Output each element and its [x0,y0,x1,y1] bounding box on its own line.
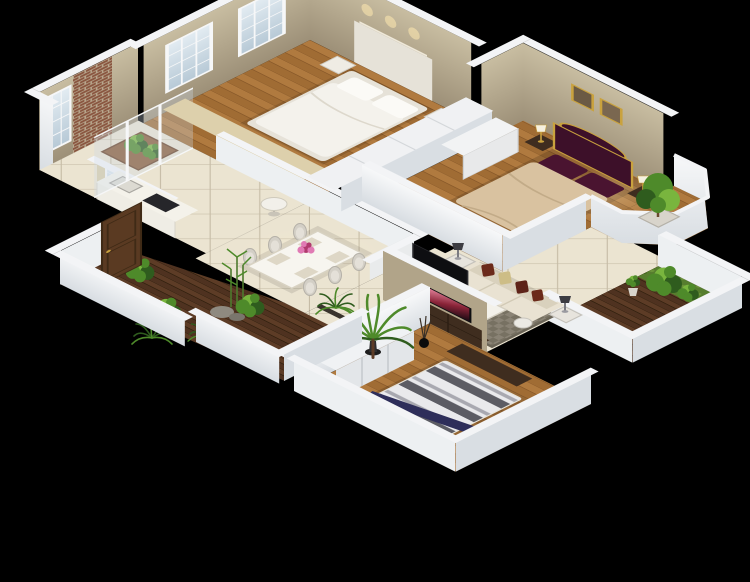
rock [229,313,245,321]
pillow [481,263,495,277]
pillow [498,271,512,285]
floor-plan-render: 3D isometric cutaway render of a three-b… [0,0,750,582]
render-canvas: 3D isometric cutaway render of a three-b… [0,0,750,582]
pillow [515,280,529,294]
dining-chair [329,267,342,284]
dining-chair [353,254,366,271]
round-side-table [514,318,532,328]
pillow [531,289,544,302]
dining-chair [304,279,317,296]
